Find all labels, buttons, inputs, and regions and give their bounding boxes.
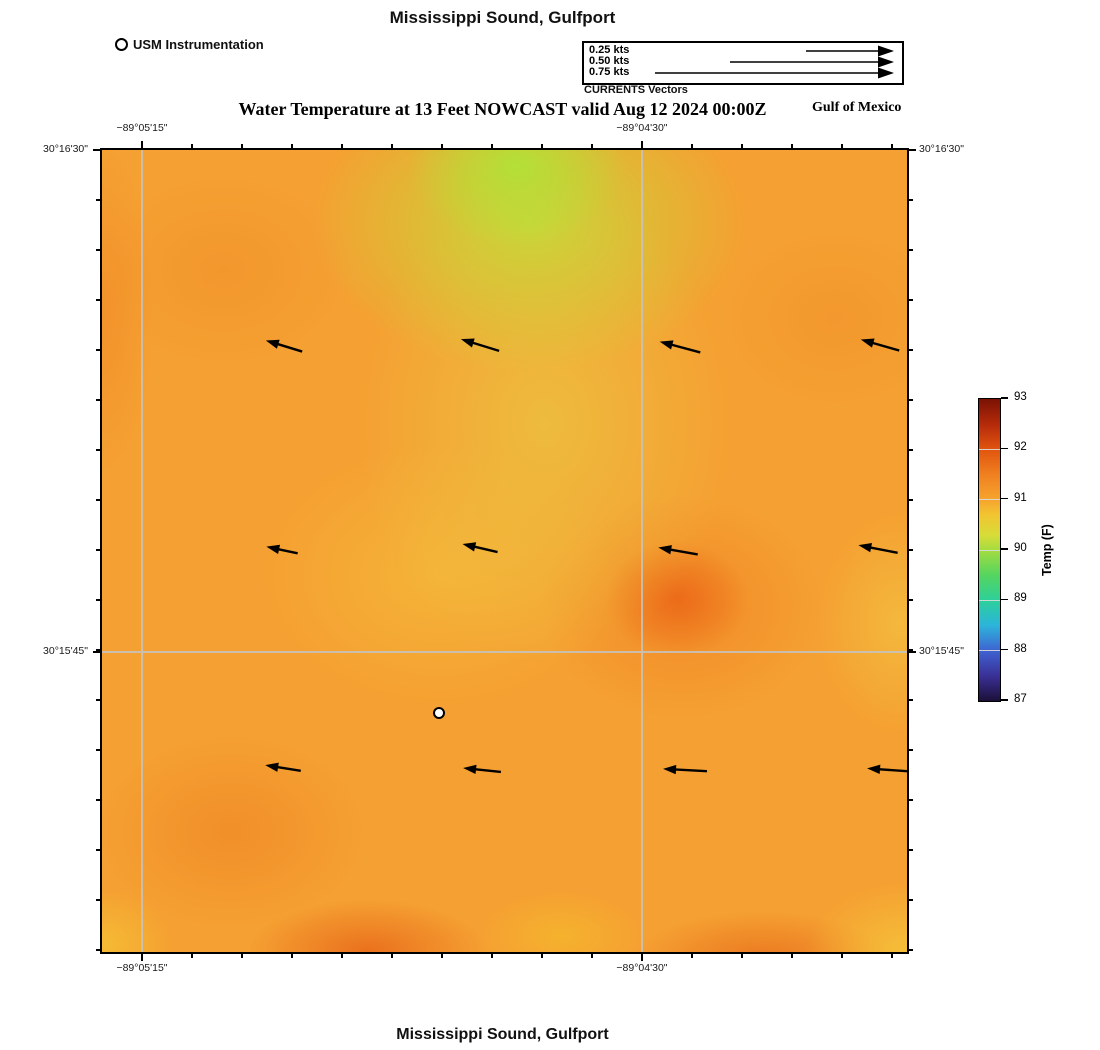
axis-tick — [907, 649, 913, 651]
axis-tick — [907, 749, 913, 751]
axis-tick — [591, 144, 593, 150]
axis-tick — [791, 144, 793, 150]
colorbar-tick-label: 91 — [1014, 492, 1027, 504]
bottom-title: Mississippi Sound, Gulfport — [100, 1026, 905, 1044]
axis-tick — [96, 899, 102, 901]
axis-tick — [841, 144, 843, 150]
colorbar-gridline — [979, 449, 1000, 450]
colorbar-title: Temp (F) — [1040, 470, 1056, 630]
colorbar-tick-label: 89 — [1014, 592, 1027, 604]
axis-tick — [391, 144, 393, 150]
axis-tick — [907, 249, 913, 251]
axis-tick — [96, 849, 102, 851]
axis-tick — [341, 144, 343, 150]
axis-tick — [96, 149, 102, 151]
axis-tick — [491, 144, 493, 150]
gridline-vertical — [141, 150, 143, 952]
axis-tick — [96, 449, 102, 451]
current-vector — [859, 335, 900, 355]
axis-tick — [741, 952, 743, 958]
colorbar-tick-label: 92 — [1014, 441, 1027, 453]
axis-tick — [141, 144, 143, 150]
axis-tick — [96, 699, 102, 701]
axis-tick — [96, 749, 102, 751]
axis-tick — [441, 144, 443, 150]
colorbar-gridline — [979, 550, 1000, 551]
current-vector — [658, 337, 701, 357]
current-vector — [461, 539, 498, 556]
axis-tick — [241, 144, 243, 150]
axis-tick — [907, 149, 913, 151]
axis-tick — [96, 299, 102, 301]
gridline-horizontal — [102, 651, 907, 653]
axis-tick — [641, 952, 643, 958]
current-vector — [463, 763, 502, 776]
axis-tick — [907, 499, 913, 501]
station-legend-circle-icon — [115, 38, 128, 51]
current-vector — [265, 542, 298, 558]
axis-tick — [691, 144, 693, 150]
axis-tick — [491, 952, 493, 958]
colorbar-tick-label: 87 — [1014, 693, 1027, 705]
current-vector — [264, 336, 303, 356]
colorbar-gridline — [979, 600, 1000, 601]
lat-tick-label-left: 30°16'30" — [8, 143, 88, 155]
axis-tick — [907, 799, 913, 801]
station-marker — [433, 707, 445, 719]
legend-item-label: 0.75 kts — [589, 67, 629, 78]
top-title: Mississippi Sound, Gulfport — [100, 8, 905, 28]
axis-tick — [1001, 699, 1008, 701]
axis-tick — [907, 399, 913, 401]
axis-tick — [907, 899, 913, 901]
axis-tick — [96, 649, 102, 651]
axis-tick — [541, 952, 543, 958]
gridline-vertical — [641, 150, 643, 952]
axis-tick — [907, 349, 913, 351]
axis-tick — [841, 952, 843, 958]
axis-tick — [441, 952, 443, 958]
lat-tick-label-left: 30°15'45" — [8, 645, 88, 657]
axis-tick — [191, 144, 193, 150]
axis-tick — [1001, 649, 1008, 651]
legend-arrows — [584, 43, 902, 83]
lon-tick-label-bottom: −89°04'30" — [597, 962, 687, 974]
current-vector — [663, 764, 707, 776]
plot-page: Mississippi Sound, Gulfport USM Instrume… — [0, 0, 1100, 1050]
axis-tick — [891, 144, 893, 150]
temperature-heatmap — [100, 148, 909, 954]
axis-tick — [96, 399, 102, 401]
axis-tick — [1001, 599, 1008, 601]
axis-tick — [241, 952, 243, 958]
lat-tick-label-right: 30°16'30" — [919, 143, 999, 155]
axis-tick — [96, 599, 102, 601]
axis-tick — [96, 199, 102, 201]
axis-tick — [791, 952, 793, 958]
axis-tick — [541, 144, 543, 150]
lon-tick-label-top: −89°05'15" — [97, 122, 187, 134]
main-title: Water Temperature at 13 Feet NOWCAST val… — [100, 99, 905, 120]
colorbar-tick-label: 88 — [1014, 643, 1027, 655]
axis-tick — [907, 651, 916, 653]
axis-tick — [96, 549, 102, 551]
axis-tick — [96, 349, 102, 351]
axis-tick — [341, 952, 343, 958]
station-legend-label: USM Instrumentation — [133, 37, 264, 52]
axis-tick — [96, 799, 102, 801]
current-vector — [657, 543, 698, 559]
axis-tick — [96, 499, 102, 501]
axis-tick — [641, 144, 643, 150]
axis-tick — [93, 651, 102, 653]
currents-legend-caption: CURRENTS Vectors — [584, 84, 688, 96]
region-label: Gulf of Mexico — [812, 100, 901, 116]
legend-arrow-icon — [878, 68, 894, 79]
axis-tick — [691, 952, 693, 958]
lon-tick-label-bottom: −89°05'15" — [97, 962, 187, 974]
axis-tick — [591, 952, 593, 958]
lat-tick-label-right: 30°15'45" — [919, 645, 999, 657]
colorbar-gridline — [979, 499, 1000, 500]
axis-tick — [191, 952, 193, 958]
colorbar-tick-label: 93 — [1014, 391, 1027, 403]
axis-tick — [1001, 498, 1008, 500]
axis-tick — [1001, 548, 1008, 550]
current-vectors-layer — [102, 150, 907, 952]
current-vector — [459, 335, 500, 356]
currents-vector-legend: 0.25 kts0.50 kts0.75 kts — [582, 41, 904, 85]
axis-tick — [96, 949, 102, 951]
axis-tick — [907, 699, 913, 701]
axis-tick — [907, 849, 913, 851]
current-vector — [857, 541, 898, 558]
axis-tick — [1001, 448, 1008, 450]
axis-tick — [907, 549, 913, 551]
axis-tick — [891, 952, 893, 958]
axis-tick — [907, 299, 913, 301]
axis-tick — [741, 144, 743, 150]
axis-tick — [907, 449, 913, 451]
axis-tick — [907, 199, 913, 201]
axis-tick — [907, 949, 913, 951]
axis-tick — [1001, 397, 1008, 399]
axis-tick — [96, 249, 102, 251]
colorbar-tick-label: 90 — [1014, 542, 1027, 554]
axis-tick — [291, 952, 293, 958]
legend-arrow-icon — [878, 57, 894, 68]
axis-tick — [391, 952, 393, 958]
current-vector — [264, 761, 301, 776]
lon-tick-label-top: −89°04'30" — [597, 122, 687, 134]
legend-arrow-icon — [878, 46, 894, 57]
axis-tick — [291, 144, 293, 150]
axis-tick — [907, 599, 913, 601]
axis-tick — [141, 952, 143, 958]
current-vector — [867, 764, 909, 777]
